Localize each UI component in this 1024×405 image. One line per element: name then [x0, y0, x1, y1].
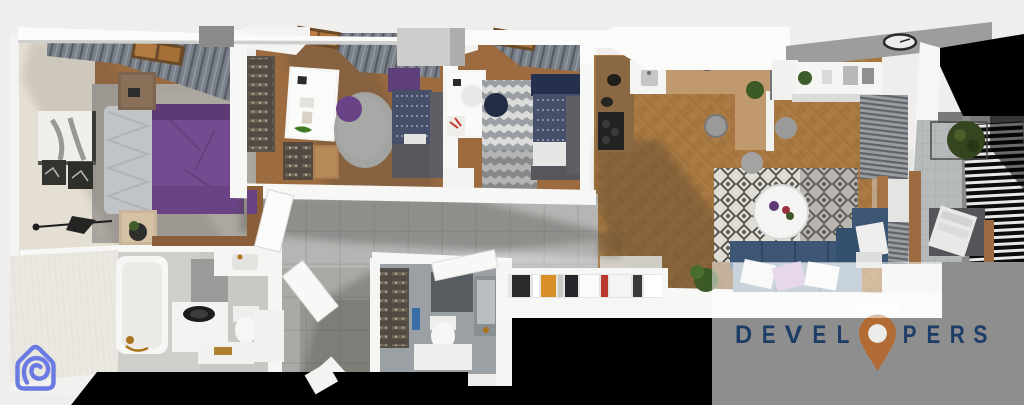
svg-text:E: E [762, 321, 776, 349]
svg-text:E: E [927, 321, 941, 349]
svg-text:V: V [785, 321, 803, 349]
svg-text:E: E [813, 321, 827, 349]
svg-text:P: P [903, 321, 917, 349]
svg-text:R: R [950, 321, 965, 349]
svg-text:D: D [735, 321, 752, 349]
svg-text:S: S [973, 321, 987, 349]
svg-text:L: L [837, 321, 850, 349]
